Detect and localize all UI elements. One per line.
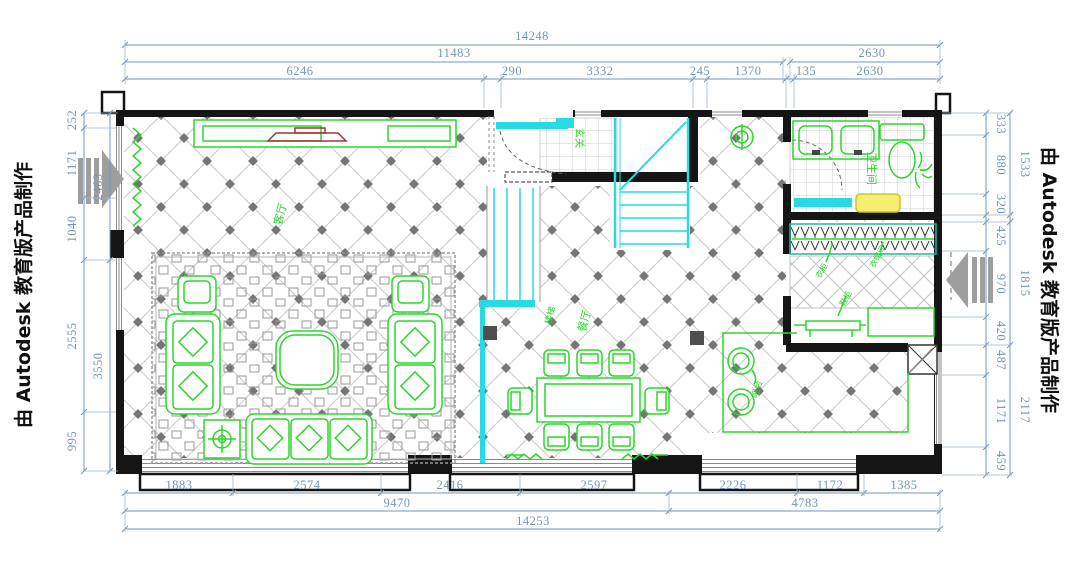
- dim-top-mid: 11483: [437, 46, 470, 60]
- floorplan-drawing: 14248 11483 2630 6246 290 3332 245 1370 …: [0, 0, 1074, 576]
- autodesk-watermark-left: 由 Autodesk 教育版产品制作: [12, 162, 35, 428]
- dim-right-0: 333: [994, 114, 1008, 134]
- dim-left-sum-0: 2463: [91, 174, 105, 201]
- side-table: [204, 420, 240, 458]
- dim-bot1-0: 1883: [166, 478, 193, 492]
- tv-cabinet: [194, 120, 456, 147]
- dim-top3-0: 6246: [287, 64, 314, 78]
- dim-top3-5: 135: [796, 64, 816, 78]
- dim-right-sum-2: 2117: [1018, 397, 1032, 424]
- dim-top3-1: 290: [502, 64, 522, 78]
- dim-right-sum-1: 1815: [1018, 270, 1032, 297]
- armchair-left: [178, 276, 216, 312]
- dim-bot1-1: 2574: [294, 478, 321, 492]
- dim-left-3: 2555: [65, 323, 79, 350]
- dim-right-4: 970: [994, 274, 1008, 294]
- dim-bot2-1: 4783: [792, 496, 819, 510]
- sofa-left: [166, 314, 220, 414]
- autodesk-watermark-right: 由 Autodesk 教育版产品制作: [1038, 147, 1061, 413]
- dim-bot1-3: 2597: [581, 478, 608, 492]
- dim-top3-6: 2630: [857, 64, 884, 78]
- dim-left-0: 252: [65, 110, 79, 130]
- dim-bot1-2: 2416: [437, 478, 464, 492]
- dim-left-1: 1171: [65, 150, 79, 177]
- dim-top3-3: 245: [690, 64, 710, 78]
- dim-left-4: 995: [65, 431, 79, 451]
- armchair-right: [392, 276, 429, 312]
- dim-left-sum-1: 3550: [91, 353, 105, 380]
- dim-right-sum-0: 1533: [1018, 151, 1032, 178]
- sofa-right: [388, 314, 442, 414]
- towel-bar: [794, 198, 852, 207]
- dim-right-2: 320: [994, 194, 1008, 214]
- cad-canvas: 14248 11483 2630 6246 290 3332 245 1370 …: [0, 0, 1074, 576]
- dim-bot1-4: 2226: [720, 478, 747, 492]
- dim-right-7: 1171: [994, 398, 1008, 425]
- label-bathroom: 卫生间: [865, 152, 879, 185]
- dim-bot2-0: 9470: [384, 496, 411, 510]
- dim-top-total: 14248: [515, 29, 549, 43]
- sofa-bottom: [246, 414, 372, 464]
- dim-right-8: 459: [994, 451, 1008, 471]
- bath-mat: [856, 194, 900, 212]
- label-entry: 玄关: [573, 128, 586, 148]
- dim-top3-4: 1370: [735, 64, 762, 78]
- coffee-table: [276, 331, 338, 389]
- dim-bot-total: 14253: [516, 514, 550, 528]
- dim-right-5: 420: [994, 321, 1008, 341]
- dim-bot1-6: 1385: [891, 478, 918, 492]
- dim-top-right: 2630: [859, 46, 886, 60]
- dim-right-1: 880: [994, 155, 1008, 175]
- dim-bot1-5: 1172: [817, 478, 844, 492]
- dim-left-2: 1040: [65, 216, 79, 243]
- dim-right-6: 487: [994, 350, 1008, 370]
- closet-door: [908, 345, 937, 374]
- dim-top3-2: 3332: [587, 64, 614, 78]
- dim-right-3: 425: [994, 226, 1008, 246]
